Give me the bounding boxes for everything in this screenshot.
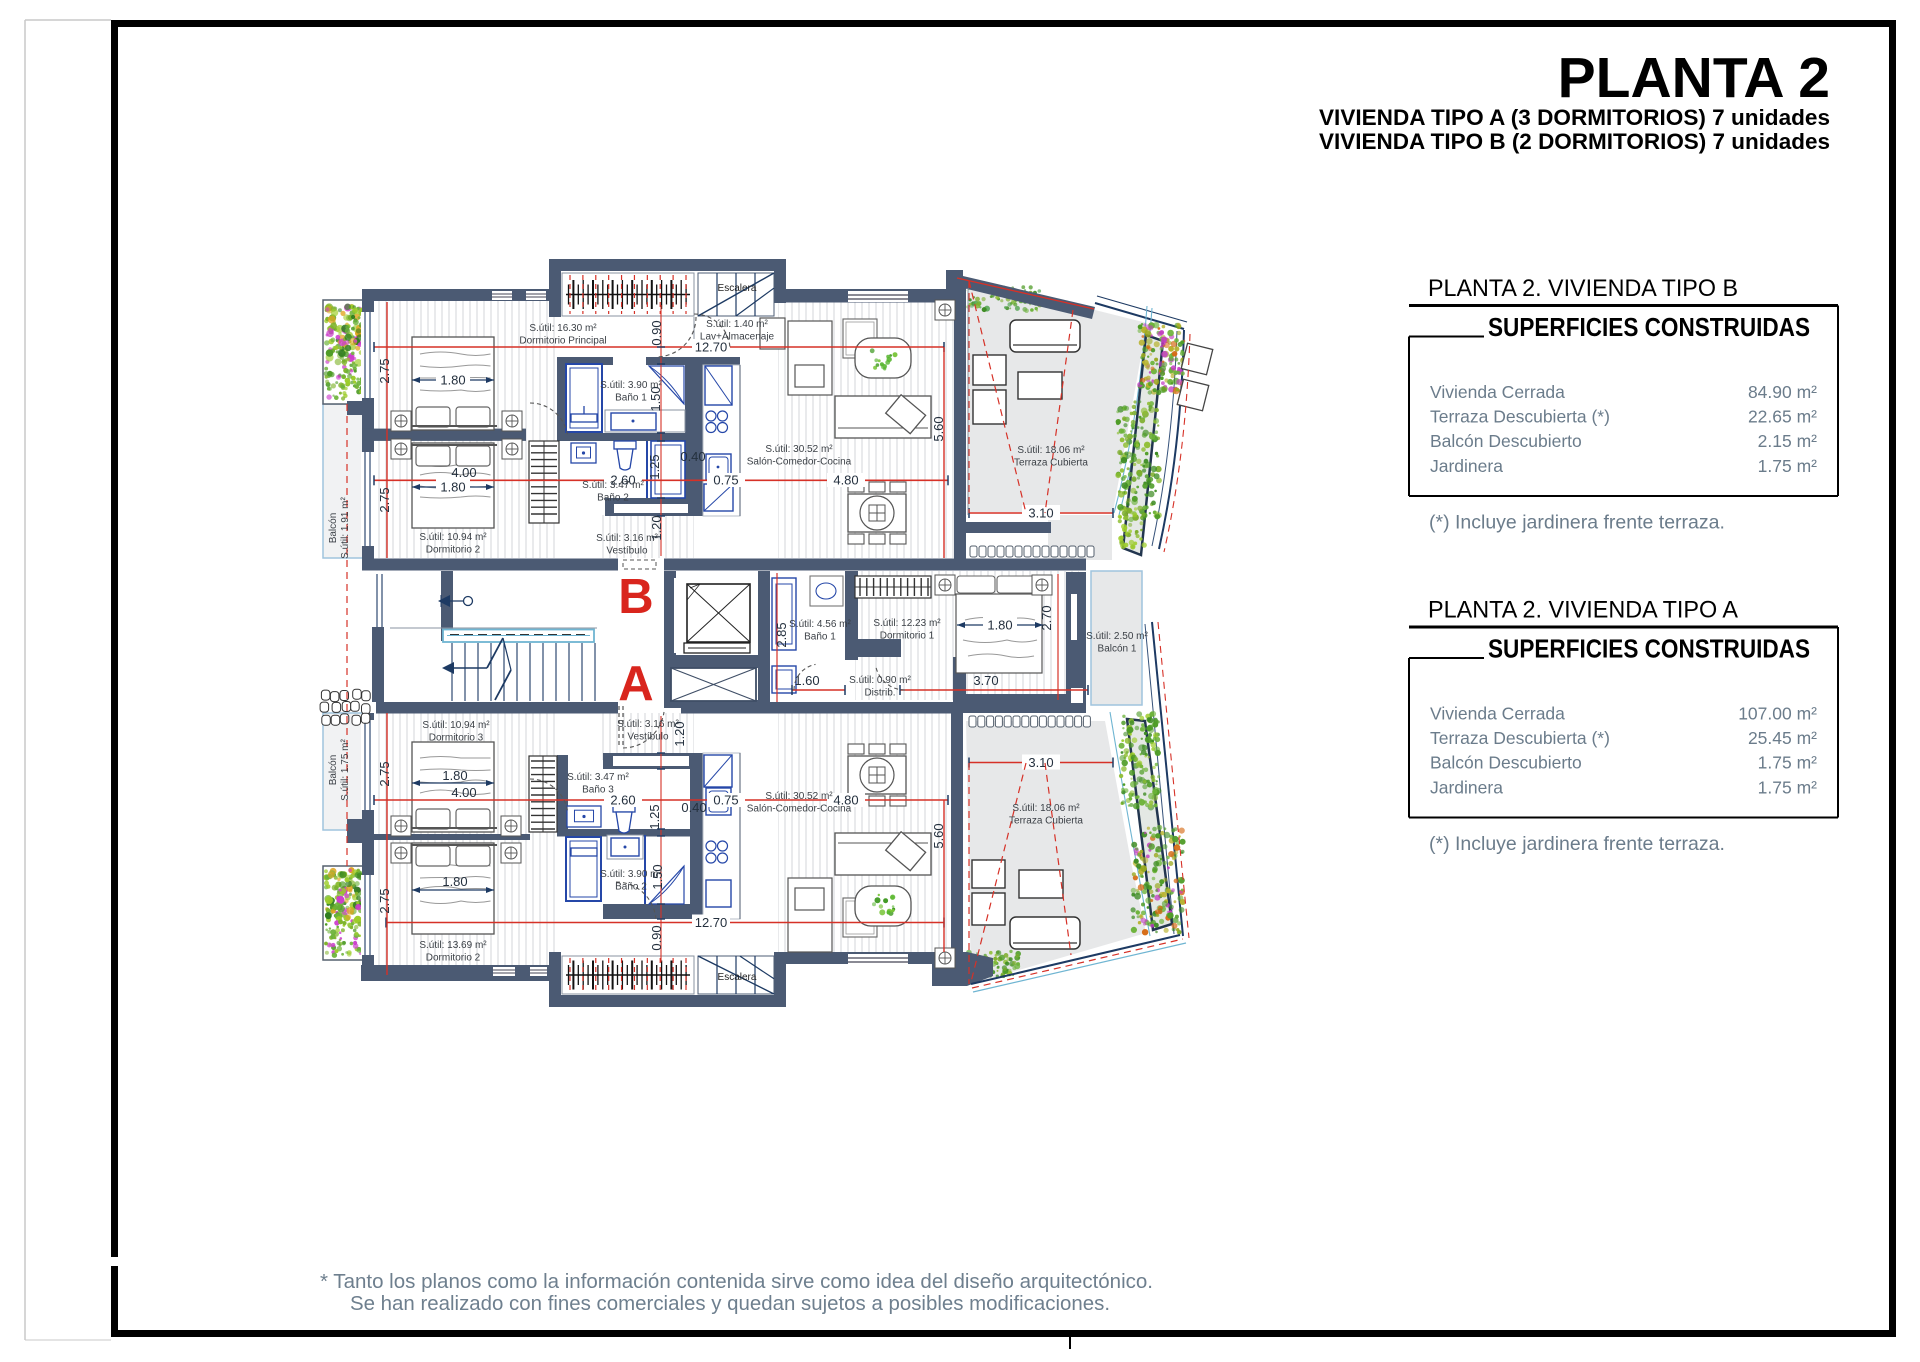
svg-text:S.útil: 10.94 m²: S.útil: 10.94 m² <box>422 720 490 731</box>
svg-text:S.útil: 3.47 m²: S.útil: 3.47 m² <box>567 772 629 783</box>
svg-text:1.20: 1.20 <box>649 515 664 540</box>
svg-text:12.70: 12.70 <box>695 915 728 930</box>
svg-text:5.60: 5.60 <box>931 823 946 848</box>
svg-text:S.útil: 4.56 m²: S.útil: 4.56 m² <box>789 619 851 630</box>
svg-text:S.útil: 1.91 m²: S.útil: 1.91 m² <box>340 496 351 558</box>
svg-text:Jardinera: Jardinera <box>1430 456 1503 476</box>
svg-text:2.85: 2.85 <box>774 622 789 647</box>
svg-text:* Tanto los planos como la inf: * Tanto los planos como la información c… <box>320 1271 1153 1293</box>
svg-text:Baño 1: Baño 1 <box>615 393 647 404</box>
svg-text:S.útil: 0.90 m²: S.útil: 0.90 m² <box>849 675 911 686</box>
svg-text:Balcón: Balcón <box>328 513 339 544</box>
svg-text:4.00: 4.00 <box>451 465 476 480</box>
svg-text:S.útil: 18.06 m²: S.útil: 18.06 m² <box>1012 803 1080 814</box>
svg-text:Dormitorio 1: Dormitorio 1 <box>880 631 935 642</box>
svg-text:0.75: 0.75 <box>713 793 738 808</box>
svg-text:S.útil: 13.69 m²: S.útil: 13.69 m² <box>419 940 487 951</box>
svg-text:2.75: 2.75 <box>377 487 392 512</box>
svg-text:2.70: 2.70 <box>1039 605 1054 630</box>
svg-text:1.25: 1.25 <box>647 454 662 479</box>
svg-text:Terraza Cubierta: Terraza Cubierta <box>1014 458 1088 469</box>
svg-text:3.70: 3.70 <box>973 673 998 688</box>
svg-text:1.25: 1.25 <box>647 804 662 829</box>
svg-text:Terraza Descubierta (*): Terraza Descubierta (*) <box>1430 728 1610 748</box>
svg-text:2.75: 2.75 <box>377 888 392 913</box>
svg-text:S.útil: 3.47 m²: S.útil: 3.47 m² <box>582 480 644 491</box>
svg-text:Balcón: Balcón <box>328 755 339 786</box>
svg-text:2.15 m²: 2.15 m² <box>1758 431 1817 451</box>
svg-text:Baño 2: Baño 2 <box>615 882 647 893</box>
svg-text:1.80: 1.80 <box>440 373 465 388</box>
svg-text:Salón-Comedor-Cocina: Salón-Comedor-Cocina <box>747 457 852 468</box>
svg-text:1.80: 1.80 <box>442 768 467 783</box>
svg-text:25.45 m²: 25.45 m² <box>1748 728 1817 748</box>
svg-text:SUPERFICIES CONSTRUIDAS: SUPERFICIES CONSTRUIDAS <box>1488 314 1810 342</box>
svg-text:2.75: 2.75 <box>377 358 392 383</box>
svg-text:1.20: 1.20 <box>672 721 687 746</box>
svg-text:PLANTA 2: PLANTA 2 <box>1558 46 1830 110</box>
svg-text:1.75 m²: 1.75 m² <box>1758 753 1817 773</box>
svg-text:S.útil: 3.16 m²: S.útil: 3.16 m² <box>617 719 679 730</box>
svg-text:Baño 1: Baño 1 <box>804 632 836 643</box>
svg-text:Terraza Descubierta (*): Terraza Descubierta (*) <box>1430 407 1610 427</box>
svg-text:S.útil: 10.94 m²: S.útil: 10.94 m² <box>419 532 487 543</box>
svg-text:A: A <box>618 657 653 711</box>
svg-text:Vivienda Cerrada: Vivienda Cerrada <box>1430 704 1565 724</box>
svg-text:3.10: 3.10 <box>1028 755 1053 770</box>
svg-text:3.10: 3.10 <box>1028 506 1053 521</box>
svg-text:4.00: 4.00 <box>451 785 476 800</box>
svg-text:S.útil: 30.52 m²: S.útil: 30.52 m² <box>765 791 833 802</box>
svg-text:Balcón Descubierto: Balcón Descubierto <box>1430 431 1582 451</box>
svg-text:Vestíbulo: Vestíbulo <box>627 732 669 743</box>
svg-text:S.útil: 16.30 m²: S.útil: 16.30 m² <box>529 323 597 334</box>
svg-text:B: B <box>618 570 653 624</box>
svg-text:S.útil: 1.40 m²: S.útil: 1.40 m² <box>706 319 768 330</box>
svg-text:1.75 m²: 1.75 m² <box>1758 456 1817 476</box>
svg-text:22.65 m²: 22.65 m² <box>1748 407 1817 427</box>
svg-text:0.90: 0.90 <box>649 925 664 950</box>
svg-text:1.75 m²: 1.75 m² <box>1758 777 1817 797</box>
svg-text:1.80: 1.80 <box>442 874 467 889</box>
svg-text:1.50: 1.50 <box>650 864 665 889</box>
svg-text:Baño 3: Baño 3 <box>582 785 614 796</box>
svg-text:Baño 2: Baño 2 <box>597 493 629 504</box>
svg-text:Dormitorio 2: Dormitorio 2 <box>426 545 481 556</box>
svg-text:PLANTA 2. VIVIENDA TIPO A: PLANTA 2. VIVIENDA TIPO A <box>1428 597 1738 624</box>
svg-text:VIVIENDA TIPO A (3 DORMITORIOS: VIVIENDA TIPO A (3 DORMITORIOS) 7 unidad… <box>1319 105 1830 130</box>
svg-text:(*) Incluye jardinera frente t: (*) Incluye jardinera frente terraza. <box>1429 512 1725 534</box>
svg-text:Jardinera: Jardinera <box>1430 777 1503 797</box>
svg-text:1.80: 1.80 <box>987 618 1012 633</box>
svg-text:Balcón 1: Balcón 1 <box>1098 644 1137 655</box>
svg-text:1.80: 1.80 <box>440 480 465 495</box>
svg-text:1.50: 1.50 <box>648 386 663 411</box>
svg-text:(*) Incluye jardinera frente t: (*) Incluye jardinera frente terraza. <box>1429 833 1725 855</box>
svg-text:S.útil: 12.23 m²: S.útil: 12.23 m² <box>873 618 941 629</box>
svg-text:0.40: 0.40 <box>681 800 706 815</box>
svg-text:PLANTA 2. VIVIENDA TIPO B: PLANTA 2. VIVIENDA TIPO B <box>1428 275 1738 302</box>
svg-text:0.75: 0.75 <box>713 473 738 488</box>
svg-text:Vivienda Cerrada: Vivienda Cerrada <box>1430 382 1565 402</box>
svg-text:0.90: 0.90 <box>649 320 664 345</box>
svg-text:Dormitorio Principal: Dormitorio Principal <box>519 336 606 347</box>
svg-text:S.útil: 2.50 m²: S.útil: 2.50 m² <box>1086 631 1148 642</box>
svg-text:S.útil: 30.52 m²: S.útil: 30.52 m² <box>765 444 833 455</box>
svg-text:5.60: 5.60 <box>931 416 946 441</box>
svg-text:Terraza Cubierta: Terraza Cubierta <box>1009 816 1083 827</box>
svg-text:2.75: 2.75 <box>377 761 392 786</box>
svg-text:Escalera: Escalera <box>718 972 757 983</box>
svg-text:S.útil: 1.75 m²: S.útil: 1.75 m² <box>340 738 351 800</box>
svg-text:0.40: 0.40 <box>680 449 705 464</box>
svg-text:S.útil: 18.06 m²: S.útil: 18.06 m² <box>1017 445 1085 456</box>
svg-text:84.90 m²: 84.90 m² <box>1748 382 1817 402</box>
svg-text:Lav+Almacenaje: Lav+Almacenaje <box>700 332 775 343</box>
svg-text:Dormitorio 2: Dormitorio 2 <box>426 953 481 964</box>
svg-text:Distrib.: Distrib. <box>864 688 895 699</box>
svg-text:107.00 m²: 107.00 m² <box>1738 704 1817 724</box>
svg-text:4.80: 4.80 <box>833 473 858 488</box>
svg-text:Salón-Comedor-Cocina: Salón-Comedor-Cocina <box>747 804 852 815</box>
svg-text:2.60: 2.60 <box>610 793 635 808</box>
svg-text:Escalera: Escalera <box>718 283 757 294</box>
svg-text:Balcón Descubierto: Balcón Descubierto <box>1430 753 1582 773</box>
svg-text:Se han realizado con fines com: Se han realizado con fines comerciales y… <box>350 1293 1110 1315</box>
svg-text:Vestíbulo: Vestíbulo <box>606 546 648 557</box>
svg-text:Dormitorio 3: Dormitorio 3 <box>429 733 484 744</box>
svg-text:VIVIENDA TIPO B (2 DORMITORIOS: VIVIENDA TIPO B (2 DORMITORIOS) 7 unidad… <box>1319 129 1830 154</box>
svg-text:SUPERFICIES CONSTRUIDAS: SUPERFICIES CONSTRUIDAS <box>1488 636 1810 664</box>
